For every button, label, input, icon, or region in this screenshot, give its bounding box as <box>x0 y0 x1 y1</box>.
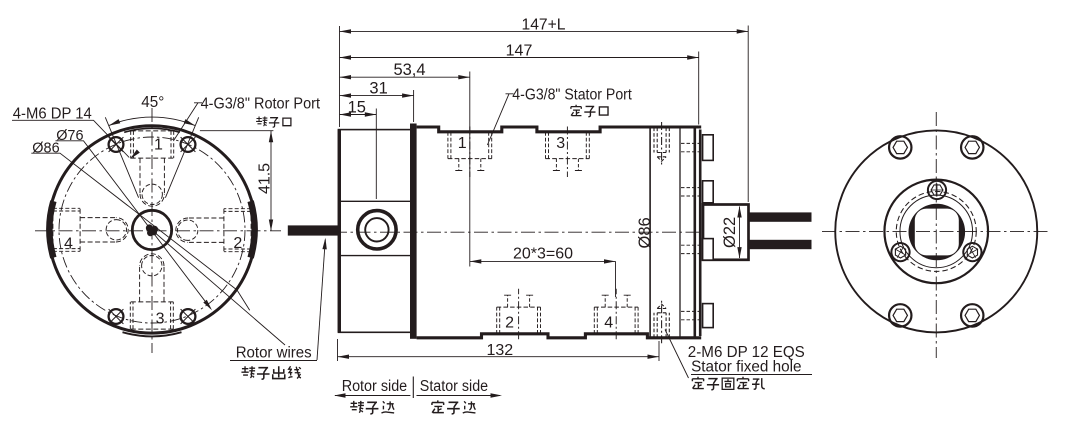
svg-text:2: 2 <box>233 235 242 252</box>
svg-text:147: 147 <box>506 43 533 60</box>
svg-text:41.5: 41.5 <box>256 163 273 194</box>
svg-text:Stator fixed hole: Stator fixed hole <box>691 359 801 376</box>
svg-text:147+L: 147+L <box>522 17 566 34</box>
svg-text:Stator side: Stator side <box>420 378 488 395</box>
svg-text:2: 2 <box>505 315 514 332</box>
svg-text:15: 15 <box>348 99 366 117</box>
svg-text:1: 1 <box>154 137 163 154</box>
svg-text:4-G3/8" Stator Port: 4-G3/8" Stator Port <box>512 86 632 103</box>
svg-text:132: 132 <box>486 342 513 359</box>
svg-text:Ø76: Ø76 <box>56 128 83 144</box>
svg-text:53,4: 53,4 <box>393 61 425 79</box>
svg-text:Ø86: Ø86 <box>32 140 59 156</box>
svg-text:Rotor side: Rotor side <box>342 378 408 395</box>
svg-text:Ø86: Ø86 <box>636 217 654 248</box>
svg-text:Rotor wires: Rotor wires <box>236 345 312 362</box>
svg-text:1: 1 <box>458 135 467 152</box>
svg-text:3: 3 <box>156 311 165 328</box>
svg-text:4: 4 <box>64 236 73 253</box>
svg-text:4-G3/8" Rotor Port: 4-G3/8" Rotor Port <box>201 96 321 113</box>
svg-text:31: 31 <box>369 80 387 98</box>
svg-text:Ø22: Ø22 <box>721 217 739 248</box>
svg-text:45°: 45° <box>141 94 164 111</box>
svg-text:4: 4 <box>604 315 613 332</box>
svg-text:3: 3 <box>556 135 565 152</box>
svg-text:20*3=60: 20*3=60 <box>513 246 573 263</box>
